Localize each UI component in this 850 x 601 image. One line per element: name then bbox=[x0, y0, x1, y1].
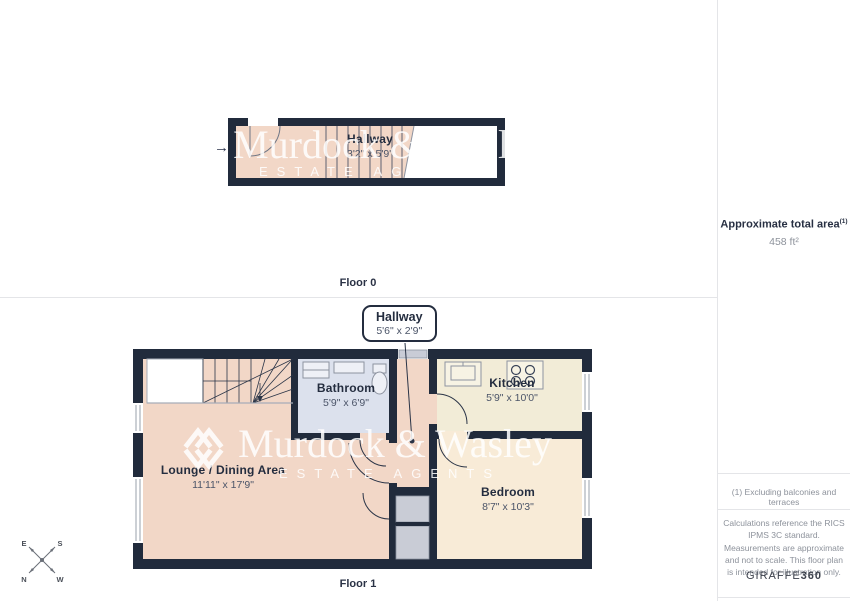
sidebar-rule-2 bbox=[718, 509, 850, 510]
room-dims: 8'7" x 10'3" bbox=[448, 501, 568, 513]
compass-s: S bbox=[57, 539, 62, 548]
room-dims: 5'6" x 2'9" bbox=[376, 325, 423, 337]
room-name: Hallway bbox=[376, 310, 423, 324]
brand-suffix: 360 bbox=[801, 570, 822, 582]
entrance-arrow-icon: → bbox=[214, 139, 229, 156]
compass-w: W bbox=[56, 575, 64, 584]
sidebar-divider bbox=[717, 0, 718, 601]
murdock-wasley-logo bbox=[182, 424, 230, 474]
room-dims: 11'11" x 17'9" bbox=[123, 479, 323, 491]
room-dims: 5'9" x 10'0" bbox=[452, 392, 572, 404]
compass-n: N bbox=[21, 575, 26, 584]
room-dims: 5'9" x 6'9" bbox=[296, 397, 396, 409]
room-name: Bedroom bbox=[448, 485, 568, 499]
room-name: Bathroom bbox=[296, 381, 396, 395]
footnote-text: (1) Excluding balconies and terraces bbox=[718, 487, 850, 507]
room-dims: 3'2" x 5'9" bbox=[320, 148, 420, 160]
room-name: Kitchen bbox=[452, 376, 572, 390]
sidebar-rule-1 bbox=[718, 473, 850, 474]
room-label-bathroom: Bathroom 5'9" x 6'9" bbox=[296, 381, 396, 409]
total-area-title: Approximate total area(1) bbox=[718, 218, 850, 231]
floor0-caption: Floor 0 bbox=[298, 277, 418, 289]
section-divider bbox=[0, 297, 717, 298]
compass-e: E bbox=[21, 539, 26, 548]
total-area-value: 458 ft² bbox=[718, 236, 850, 248]
giraffe360-logo: GIRAFFE360 bbox=[718, 570, 850, 582]
total-area-label: Approximate total area bbox=[720, 219, 839, 231]
total-area-footnote-marker: (1) bbox=[840, 218, 848, 225]
sidebar-rule-3 bbox=[718, 597, 850, 598]
brand-name: GIRAFFE bbox=[746, 570, 801, 582]
room-label-bedroom: Bedroom 8'7" x 10'3" bbox=[448, 485, 568, 513]
floorplan-page: → Hallway 3'2" x 5'9" Murdock & Wasley E… bbox=[0, 0, 850, 601]
room-label-hallway-floor0: Hallway 3'2" x 5'9" bbox=[320, 132, 420, 160]
room-name: Hallway bbox=[320, 132, 420, 146]
hallway-callout: Hallway 5'6" x 2'9" bbox=[362, 305, 437, 342]
floor1-caption: Floor 1 bbox=[298, 578, 418, 590]
room-label-kitchen: Kitchen 5'9" x 10'0" bbox=[452, 376, 572, 404]
compass-icon: E S N W bbox=[16, 534, 68, 586]
callout-pointer bbox=[395, 340, 425, 448]
